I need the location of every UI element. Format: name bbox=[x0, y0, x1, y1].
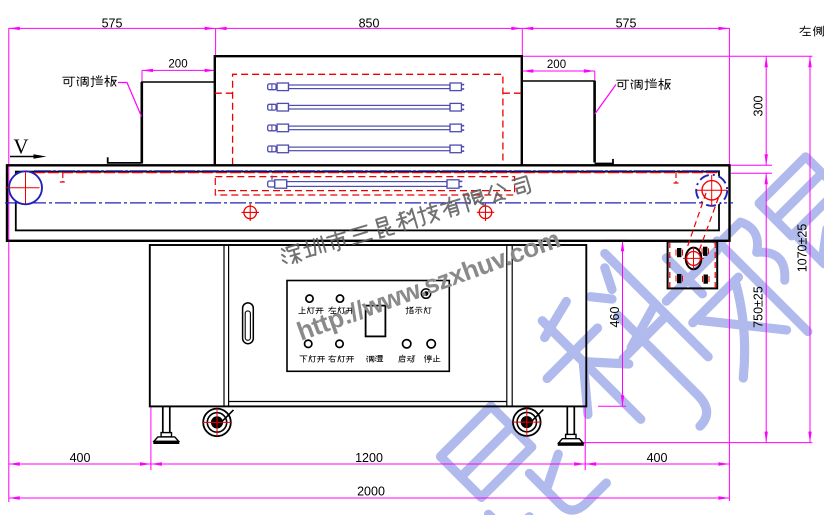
svg-text:575: 575 bbox=[616, 16, 637, 30]
svg-text:1200: 1200 bbox=[355, 451, 383, 465]
svg-text:1070±25: 1070±25 bbox=[796, 224, 810, 273]
svg-text:300: 300 bbox=[752, 96, 766, 117]
svg-text:400: 400 bbox=[70, 451, 91, 465]
svg-text:575: 575 bbox=[102, 16, 123, 30]
svg-text:200: 200 bbox=[168, 59, 187, 71]
svg-text:2000: 2000 bbox=[357, 485, 385, 499]
svg-text:750±25: 750±25 bbox=[752, 286, 766, 328]
svg-text:850: 850 bbox=[359, 16, 380, 30]
svg-text:400: 400 bbox=[647, 451, 668, 465]
svg-text:V: V bbox=[13, 135, 28, 159]
svg-text:460: 460 bbox=[608, 307, 622, 328]
svg-text:200: 200 bbox=[547, 59, 566, 71]
